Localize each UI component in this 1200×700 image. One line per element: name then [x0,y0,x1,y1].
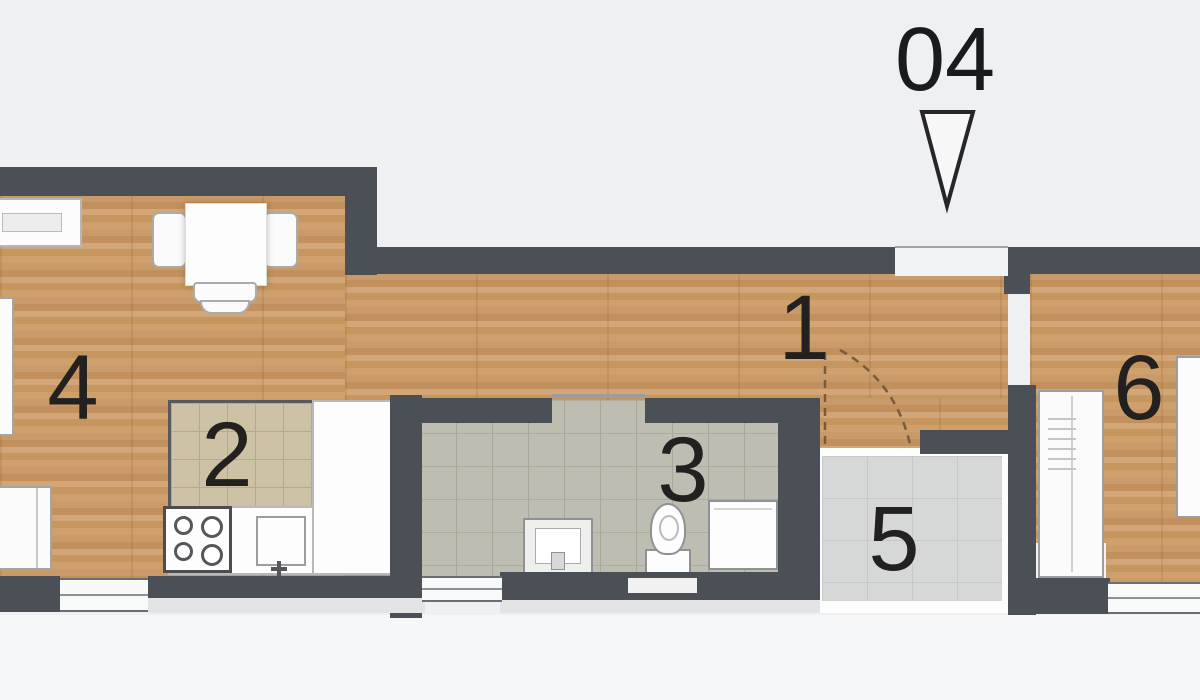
sofa-icon [0,297,14,436]
living-room-window [60,578,148,612]
wall-top-left [0,167,377,196]
hanger-icon [1048,448,1076,450]
bedroom-window [1108,582,1200,614]
wall-bottom-bedroom [1008,578,1110,614]
burner-icon [201,544,223,566]
wall-sill [500,600,820,613]
stove-icon [163,506,232,573]
dining-chair-icon [263,212,298,268]
room-label-6: 6 [1113,342,1162,434]
wall-bottom-left [0,576,60,612]
hanger-icon [1048,418,1076,420]
washing-machine-icon [708,500,778,570]
hallway-floor [345,273,1008,402]
wardrobe-icon [1038,390,1104,578]
wall-bottom-living [148,576,425,598]
wall-bath-top-left [390,398,552,423]
unit-number-label: 04 [895,15,995,105]
bathroom-vent-window [628,578,697,593]
entrance-opening [895,246,1008,276]
kitchen-faucet-icon [271,567,287,571]
burner-icon [201,516,223,538]
armchair-icon [0,486,52,570]
burner-icon [174,516,193,535]
dining-chair-icon [152,212,187,268]
hanger-icon [1048,468,1076,470]
sideboard-icon [0,198,82,247]
wall-top-right [1008,247,1200,274]
bathroom-sink-drain [551,552,565,570]
bathroom-sink-icon [523,518,593,576]
background-lower [0,615,1200,700]
room-label-5: 5 [868,493,917,585]
floor-plan: 04 1 2 3 4 5 6 [0,0,1200,700]
dining-table-icon [185,203,267,286]
room-label-4: 4 [47,342,96,434]
entrance-door-jamb [1004,274,1030,294]
wall-sill [148,598,425,613]
wall-bath-right [778,398,820,580]
dining-chair-icon [200,300,250,314]
armchair-armrest [36,488,38,568]
entrance-arrow-icon [922,112,973,206]
bathroom-window [422,576,502,602]
hanger-icon [1048,438,1076,440]
room-label-3: 3 [657,424,706,516]
room-label-1: 1 [778,282,827,374]
wall-entry-top [920,430,1022,454]
room-label-2: 2 [201,409,250,501]
wardrobe-rail [1071,396,1073,572]
burner-icon [174,542,193,561]
hanger-icon [1048,458,1076,460]
wall-top-middle [345,247,895,274]
bathroom-door [552,394,645,397]
bed-icon [1176,356,1200,518]
kitchen-sink-icon [256,516,306,566]
kitchen-counter-vertical [312,400,392,575]
hanger-icon [1048,428,1076,430]
